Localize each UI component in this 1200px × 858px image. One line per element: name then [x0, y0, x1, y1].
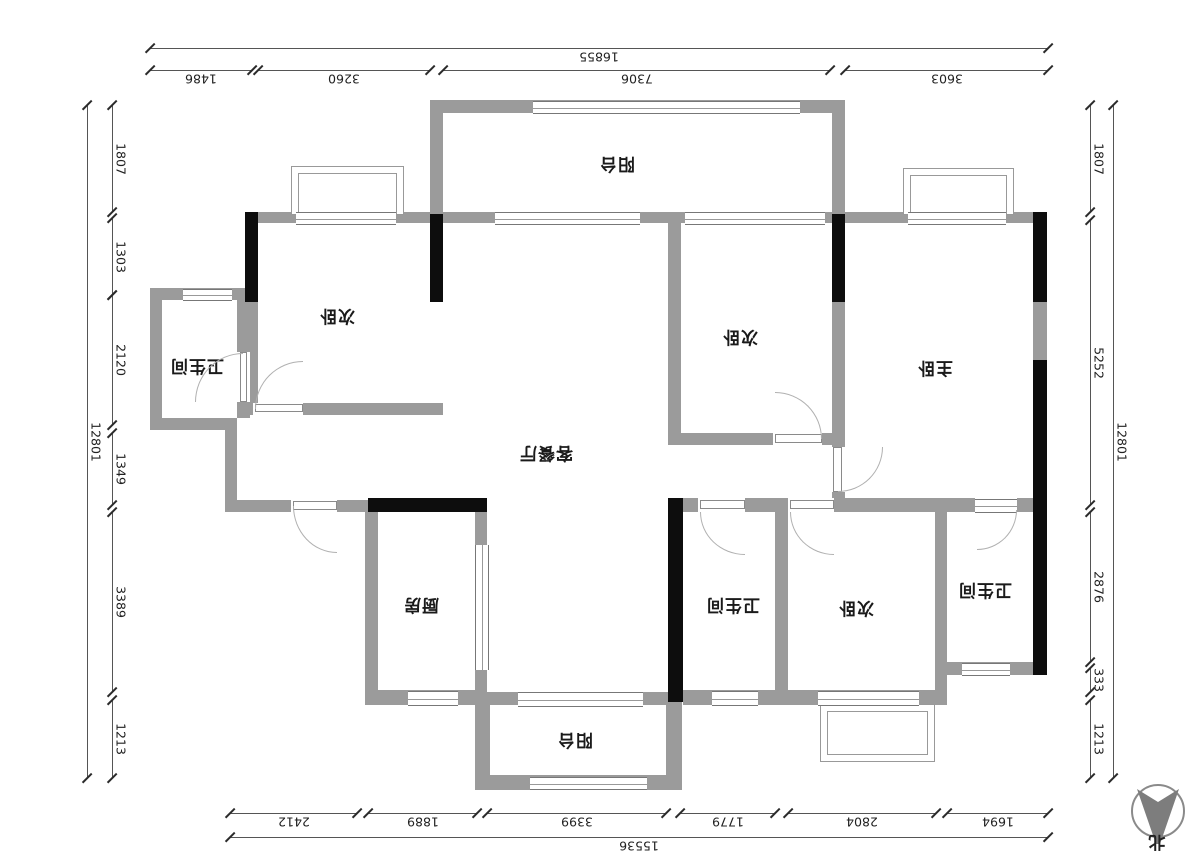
bay-window — [827, 711, 928, 755]
door-leaf — [790, 500, 834, 509]
room-label-bedroom-top-left: 次卧 — [319, 306, 355, 331]
dimension-label: 3260 — [328, 72, 360, 87]
structural-wall — [832, 214, 845, 302]
dimension-label: 2412 — [278, 815, 310, 830]
wall — [775, 512, 788, 690]
door-swing-arc — [775, 392, 822, 439]
dimension-label: 12801 — [1115, 422, 1130, 462]
wall — [668, 212, 681, 445]
room-label-living-dining: 客餐厅 — [519, 443, 573, 468]
window — [183, 289, 232, 301]
door-swing-arc — [293, 506, 337, 553]
dimension-label: 1694 — [982, 815, 1014, 830]
room-label-bedroom-bottom: 次卧 — [838, 598, 874, 623]
structural-wall — [668, 498, 683, 702]
wall — [430, 100, 443, 215]
room-label-balcony-top: 阳台 — [599, 154, 635, 179]
room-label-bath-right: 卫生间 — [958, 580, 1012, 605]
room-label-kitchen: 厨房 — [403, 595, 439, 620]
window — [408, 691, 458, 706]
bay-window — [298, 173, 397, 215]
dimension-label: 3603 — [931, 72, 963, 87]
dimension-label: 2120 — [114, 344, 129, 376]
door-swing-arc — [790, 512, 834, 555]
wall — [365, 512, 378, 695]
wall — [150, 418, 237, 430]
dimension-label: 3389 — [114, 586, 129, 618]
dimension-label: 5252 — [1092, 347, 1107, 379]
room-label-bedroom-top-right: 次卧 — [722, 327, 758, 352]
dimension-label: 1779 — [712, 815, 744, 830]
door-swing-arc — [700, 512, 745, 555]
dimension-label: 1303 — [114, 241, 129, 273]
dimension-label: 15536 — [619, 839, 659, 854]
window — [518, 692, 643, 707]
window — [533, 101, 800, 114]
dimension-label: 1807 — [1092, 143, 1107, 175]
window — [530, 777, 647, 790]
door-swing-arc — [255, 361, 303, 409]
dimension-label: 333 — [1092, 668, 1107, 692]
window — [818, 691, 919, 706]
structural-wall — [368, 498, 487, 512]
dimension-label: 16855 — [579, 50, 619, 65]
wall — [1033, 302, 1047, 360]
room-label-master-bedroom: 主卧 — [917, 358, 953, 383]
dimension-label: 3399 — [561, 815, 593, 830]
window — [962, 663, 1010, 676]
window — [712, 691, 758, 706]
dimension-label: 7306 — [621, 72, 653, 87]
wall — [225, 418, 237, 505]
wall — [832, 302, 845, 433]
dimension-label: 2804 — [846, 815, 878, 830]
structural-wall — [1033, 505, 1047, 675]
door-leaf — [700, 500, 745, 509]
structural-wall — [1033, 360, 1047, 505]
floor-plan: 阳台 次卧 卫生间 次卧 主卧 客餐厅 厨房 卫生间 次卧 卫生间 阳台 北 1… — [0, 0, 1200, 858]
dimension-label: 1213 — [114, 723, 129, 755]
wall — [475, 695, 490, 790]
wall — [150, 288, 162, 430]
dimension-label: 2876 — [1092, 571, 1107, 603]
wall — [832, 433, 845, 447]
window — [495, 212, 640, 225]
window — [908, 212, 1006, 225]
dimension-label: 1486 — [185, 72, 217, 87]
window — [685, 212, 825, 225]
room-label-bath-bottom: 卫生间 — [706, 595, 760, 620]
structural-wall — [1033, 212, 1047, 302]
dimension-label: 12801 — [89, 422, 104, 462]
structural-wall — [430, 214, 443, 302]
dimension-label: 1889 — [407, 815, 439, 830]
door-swing-arc — [838, 447, 883, 492]
dimension-label: 1213 — [1092, 723, 1107, 755]
wall — [935, 505, 947, 690]
sliding-door — [475, 545, 489, 670]
structural-wall — [245, 212, 258, 302]
dimension-label: 1807 — [114, 143, 129, 175]
north-label: 北 — [1149, 832, 1166, 857]
wall — [666, 695, 682, 790]
bay-window — [910, 175, 1007, 215]
dimension-label: 1349 — [114, 453, 129, 485]
room-label-balcony-bottom: 阳台 — [557, 730, 593, 755]
door-swing-arc — [977, 510, 1017, 550]
wall — [832, 100, 845, 215]
window — [296, 212, 396, 225]
